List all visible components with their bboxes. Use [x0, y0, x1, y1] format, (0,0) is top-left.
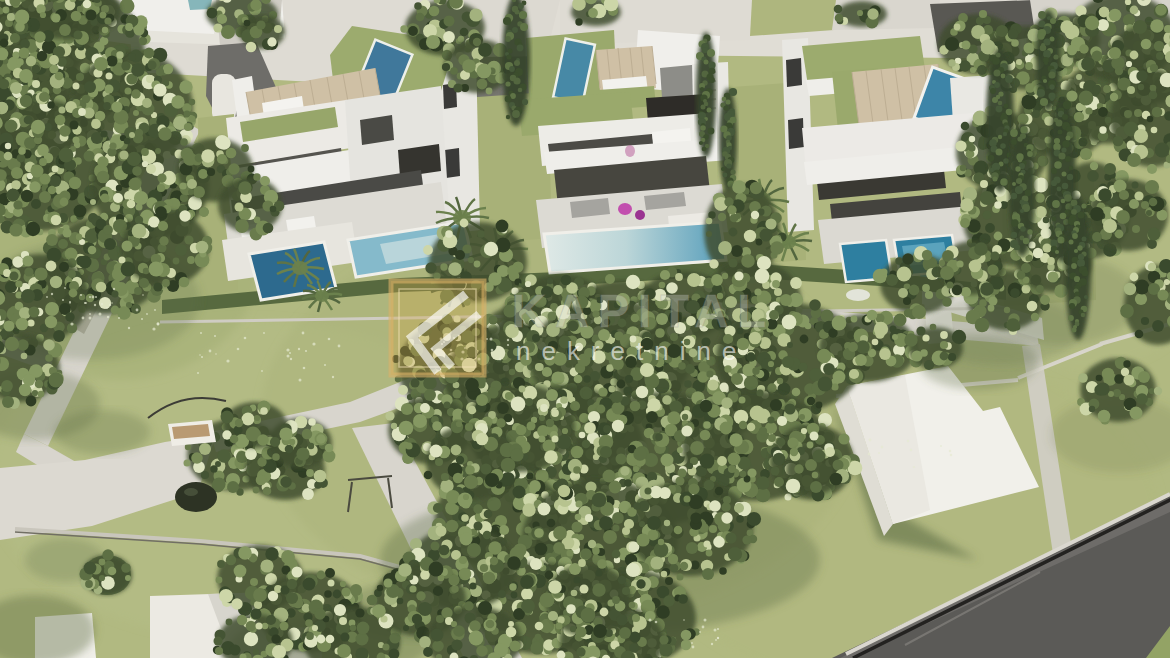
svg-text:KAPITAL: KAPITAL [512, 284, 775, 337]
svg-text:nekretnine: nekretnine [516, 336, 747, 366]
